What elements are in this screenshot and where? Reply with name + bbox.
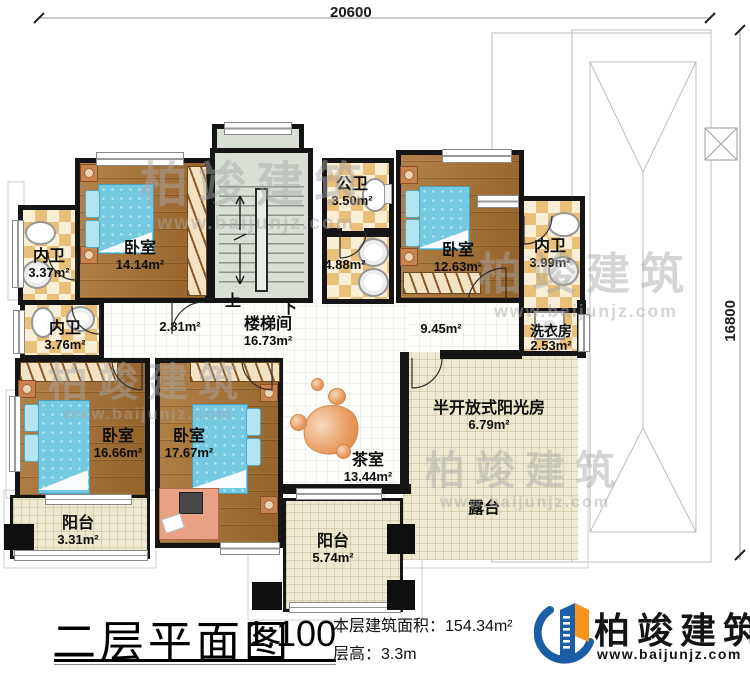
window xyxy=(96,152,184,166)
pillow xyxy=(246,408,261,436)
pillow xyxy=(85,190,100,218)
column xyxy=(387,580,415,610)
dimension-right: 16800 xyxy=(722,300,739,342)
room-label-bedroom-bl: 卧室16.66m² xyxy=(94,428,142,460)
room-label-tearoom: 茶室13.44m² xyxy=(344,452,392,484)
room-label-laundry: 洗衣房2.53m² xyxy=(530,324,572,354)
room-label-bedroom-bc: 卧室17.67m² xyxy=(165,428,213,460)
room-label-sunroom: 半开放式阳光房6.79m² xyxy=(433,400,545,432)
room-label-terrace: 露台 xyxy=(468,500,500,518)
stair-up-label: 上 xyxy=(225,287,241,311)
floor-plan-canvas: 卧室14.14m² 卧室12.63m² 卧室16.66m² 卧室17.67m² … xyxy=(0,0,750,678)
sunroom-north-wall xyxy=(440,350,522,359)
decor-stone xyxy=(328,388,346,405)
nightstand xyxy=(400,166,418,184)
column xyxy=(4,524,34,550)
window xyxy=(220,542,280,555)
bath-divider-wall-a xyxy=(322,228,342,234)
room-label-vanity: 4.88m² xyxy=(324,258,365,272)
sink xyxy=(358,268,389,297)
window xyxy=(578,314,590,352)
window xyxy=(477,195,519,208)
pillow xyxy=(85,220,100,248)
balcony-railing xyxy=(14,550,148,561)
decor-stone xyxy=(290,414,307,431)
stair-handrail xyxy=(255,188,268,292)
decor-stone xyxy=(311,378,324,391)
nightstand xyxy=(260,496,278,514)
wardrobe xyxy=(20,362,118,382)
nightstand xyxy=(80,164,98,182)
pillow xyxy=(405,219,420,247)
nightstand xyxy=(80,246,98,264)
room-label-bath-tl: 内卫3.37m² xyxy=(28,248,69,280)
title-underline-thin xyxy=(54,664,336,665)
pillow xyxy=(24,404,39,432)
floor-height-note: 层高：3.3m xyxy=(333,640,417,664)
pillow xyxy=(24,434,39,462)
room-label-public-bath: 公卫3.50m² xyxy=(331,176,372,208)
pillow xyxy=(246,438,261,466)
plan-scale: 1:100 xyxy=(246,613,336,655)
title-underline xyxy=(54,659,336,662)
nightstand xyxy=(400,248,418,266)
computer-monitor xyxy=(179,492,203,514)
window xyxy=(296,488,382,500)
company-logo-url: www.baijunjz.com xyxy=(597,646,742,662)
nightstand xyxy=(260,384,278,402)
window xyxy=(442,149,512,163)
window xyxy=(13,310,25,354)
dimension-top: 20600 xyxy=(330,4,372,21)
toilet-tank xyxy=(384,184,392,204)
column xyxy=(387,524,415,554)
window xyxy=(12,220,24,288)
room-label-bath-tr: 内卫3.99m² xyxy=(529,238,570,270)
room-label-corridor-w: 2.81m² xyxy=(159,320,200,334)
window xyxy=(224,122,292,135)
company-logo-icon xyxy=(534,596,594,675)
room-label-bath-ml: 内卫3.76m² xyxy=(44,320,85,352)
room-label-balcony-bc: 阳台5.74m² xyxy=(312,533,353,565)
room-label-bedroom-tr: 卧室12.63m² xyxy=(434,242,482,274)
window xyxy=(9,396,21,472)
room-label-stairwell: 楼梯间16.73m² xyxy=(244,316,292,348)
floor-area-note: 本层建筑面积：154.34m² xyxy=(333,612,513,636)
bath-divider-wall-b xyxy=(364,228,394,234)
sunroom-west-wall xyxy=(400,352,409,492)
sunroom-terrace-floor xyxy=(403,352,578,560)
wardrobe xyxy=(403,272,481,294)
stair-down-label: 下 xyxy=(281,294,297,318)
wardrobe xyxy=(187,166,207,296)
room-label-balcony-bl: 阳台3.31m² xyxy=(57,515,98,547)
sliding-door xyxy=(45,494,132,505)
toilet xyxy=(25,221,56,245)
wardrobe xyxy=(190,362,280,382)
room-label-corridor-e: 9.45m² xyxy=(420,322,461,336)
toilet xyxy=(548,212,580,237)
pillow xyxy=(405,190,420,218)
room-label-bedroom-tl: 卧室14.14m² xyxy=(116,240,164,272)
